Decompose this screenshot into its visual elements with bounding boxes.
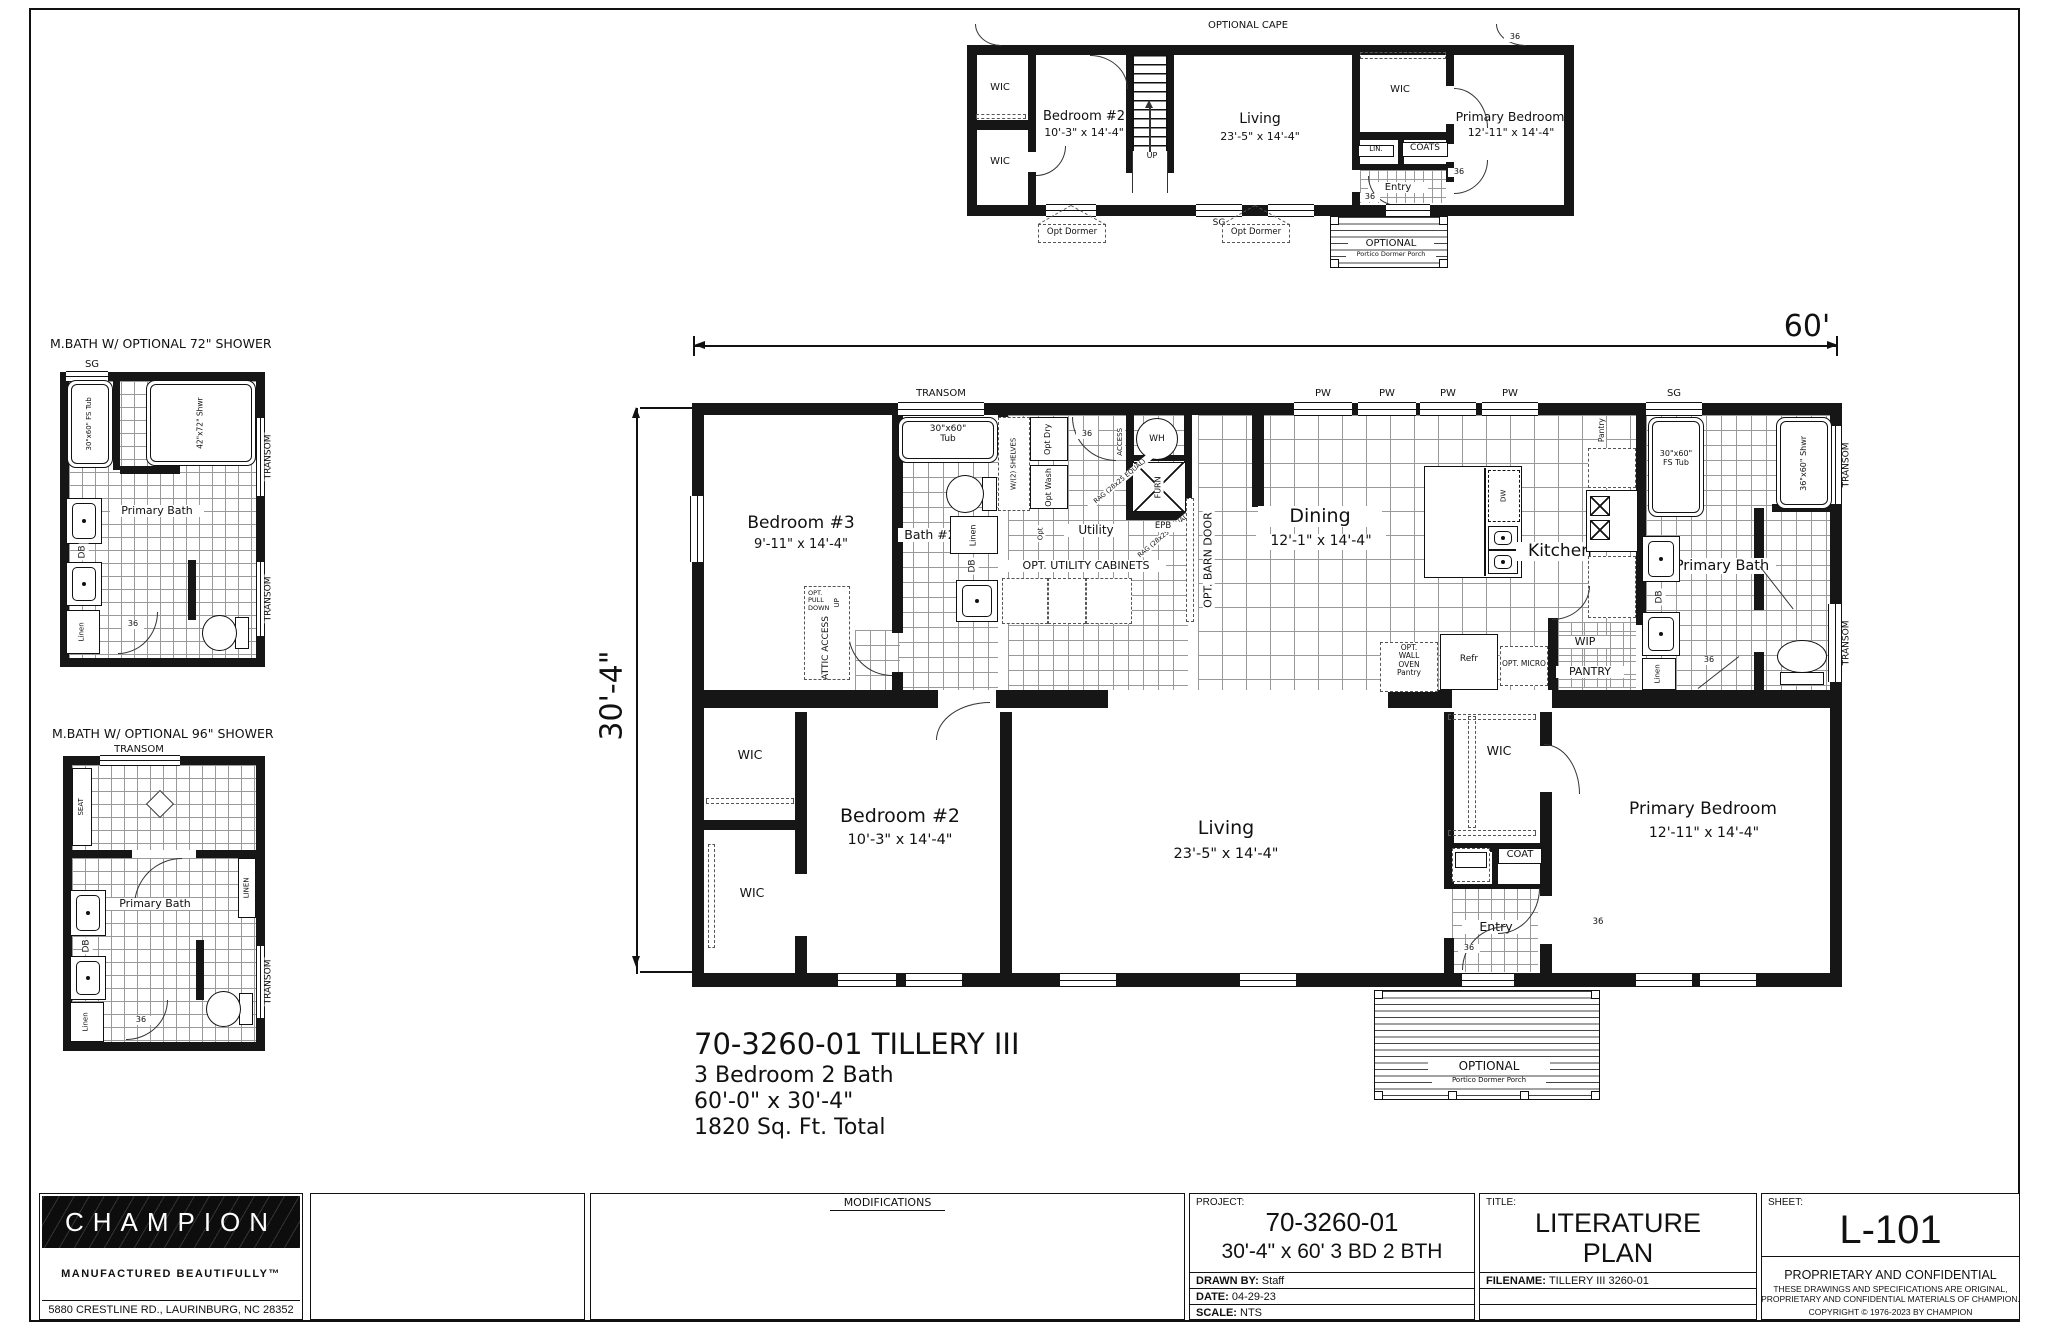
filename-row: FILENAME: TILLERY III 3260-01	[1479, 1272, 1757, 1288]
plan-title-line1: 70-3260-01 TILLERY III	[694, 1028, 1254, 1060]
pw-label: PW	[1482, 388, 1538, 399]
scale-row: SCALE: NTS	[1189, 1304, 1475, 1320]
drawn-by-label: DRAWN BY:	[1196, 1275, 1259, 1287]
cape-closet-lin: LIN.	[1358, 145, 1394, 157]
bath72-room-label: Primary Bath	[110, 505, 204, 517]
opt-label: Opt	[1034, 518, 1048, 550]
wall	[1540, 712, 1552, 746]
cape-room-living: Living	[1205, 112, 1315, 128]
porch-post	[1439, 216, 1448, 225]
transom-label: TRANSOM	[1840, 424, 1854, 506]
door-size-label: 36	[1076, 430, 1098, 439]
attic-access-label: ATTIC ACCESS	[804, 618, 850, 678]
date-value: 04-29-23	[1232, 1291, 1276, 1303]
sheet-number: L-101	[1761, 1208, 2020, 1253]
dim-60-label: 60'	[1772, 310, 1842, 344]
wall	[1028, 172, 1036, 205]
door-size-label: 36	[1360, 193, 1380, 202]
wip-label: WIP	[1560, 636, 1610, 648]
pantry-caps-label: PANTRY	[1556, 666, 1624, 678]
closet-shelf-dashed	[1448, 714, 1536, 720]
db-label: DB	[66, 544, 102, 560]
window	[1700, 973, 1756, 987]
bath96-transom-label: TRANSOM	[104, 744, 174, 755]
closet-shelf-dashed	[708, 844, 715, 948]
bath96-title: M.BATH W/ OPTIONAL 96" SHOWER	[52, 727, 332, 741]
room-utility: Utility	[1064, 524, 1128, 537]
wall	[1444, 938, 1454, 973]
stamp-box	[310, 1193, 585, 1320]
room-dining-dim: 12'-1" x 14'-4"	[1256, 534, 1386, 550]
linen-label: Linen	[1642, 658, 1676, 690]
island-divider	[1484, 468, 1486, 576]
tagline-band: MANUFACTURED BEAUTIFULLY™	[42, 1248, 300, 1300]
wall	[1352, 132, 1454, 140]
wall	[1028, 52, 1036, 152]
front-door-gap	[1462, 973, 1514, 987]
window	[1294, 402, 1352, 416]
window	[898, 402, 984, 416]
toilet	[1776, 640, 1828, 684]
island-sink	[1488, 526, 1518, 550]
pw-label: PW	[1358, 388, 1416, 399]
wall	[1754, 652, 1764, 690]
room-dining: Dining	[1258, 506, 1382, 527]
db-label: DB	[70, 938, 106, 954]
transom-label: TRANSOM	[1840, 602, 1854, 684]
room-primary-bedroom-dim: 12'-11" x 14'-4"	[1626, 826, 1782, 842]
epb-label: EPB	[1144, 522, 1182, 532]
wall	[892, 672, 903, 690]
opt-dry-label: Opt Dry	[1030, 417, 1068, 461]
sheet-divider	[1761, 1256, 2020, 1257]
db-label: DB	[1642, 584, 1680, 610]
cape-room-primary-bedroom-dim: 12'-11" x 14'-4"	[1452, 127, 1570, 139]
window	[1358, 402, 1416, 416]
window	[1060, 973, 1116, 987]
proprietary-line2: PROPRIETARY AND CONFIDENTIAL MATERIALS O…	[1761, 1295, 2020, 1305]
opt-cabinet	[1048, 578, 1086, 624]
brand-name: CHAMPION	[65, 1207, 277, 1238]
counter	[1588, 448, 1636, 488]
cape-porch-portico: Portico Dormer Porch	[1346, 251, 1436, 258]
vanity-sink	[956, 580, 998, 622]
opt-dormer-label: Opt Dormer	[1222, 228, 1290, 238]
wall	[1168, 45, 1174, 173]
stairs-up-label: UP	[1140, 152, 1164, 161]
porch-post	[1330, 216, 1339, 225]
tub-size-label: 30"x60" Tub	[898, 424, 998, 444]
dim-ext-tick	[640, 407, 692, 409]
dim-ext-tick	[693, 336, 695, 356]
barn-door-track	[1186, 498, 1194, 622]
pantry-label: Pantry	[1594, 412, 1610, 448]
porch-optional-label: OPTIONAL	[1428, 1060, 1550, 1073]
drawn-by-value: Staff	[1262, 1275, 1284, 1287]
plan-title-line2: 3 Bedroom 2 Bath	[694, 1064, 1254, 1089]
opt-micro-label: OPT. MICRO	[1500, 660, 1548, 668]
wall	[60, 658, 265, 667]
empty-row	[1479, 1304, 1757, 1320]
wall	[72, 850, 132, 858]
coat-closet-label: COAT	[1498, 848, 1542, 864]
closet-shelf-dashed	[1360, 52, 1446, 59]
closet-shelf-dashed	[976, 114, 1026, 119]
counter	[1588, 556, 1636, 618]
porch-post	[1591, 1091, 1600, 1100]
porch-post	[1374, 1091, 1383, 1100]
door-size-label: 36	[1458, 944, 1480, 953]
dim-304-label: 30'-4"	[588, 630, 636, 760]
cape-room-bedroom2: Bedroom #2	[1036, 110, 1132, 125]
room-bedroom2: Bedroom #2	[820, 806, 980, 827]
wall	[63, 1042, 265, 1051]
sheet-label: SHEET:	[1768, 1197, 1888, 1208]
toilet	[202, 614, 248, 652]
window	[1240, 973, 1296, 987]
wall	[1540, 944, 1552, 973]
wall	[120, 466, 180, 474]
vanity-sink	[1642, 612, 1680, 656]
island-sink	[1488, 550, 1518, 574]
stair-arrow-head	[1145, 100, 1153, 108]
sheet-title-line2: PLAN	[1479, 1238, 1757, 1268]
linen-label: Linen	[950, 516, 998, 554]
filename-value: TILLERY III 3260-01	[1549, 1275, 1649, 1287]
vanity-sink	[70, 890, 106, 936]
closet-shelf-dashed	[706, 798, 794, 804]
drawn-by-row: DRAWN BY: Staff	[1189, 1272, 1475, 1288]
cape-room-wic-3: WIC	[1370, 84, 1430, 95]
dw-label: DW	[1488, 470, 1520, 522]
entry-closet-shelf	[1455, 852, 1487, 868]
wh-label: WH	[1149, 434, 1165, 444]
wall	[188, 560, 196, 620]
transom-label: TRANSOM	[898, 388, 984, 399]
vanity-sink	[66, 498, 102, 544]
wall	[1000, 712, 1012, 973]
date-label: DATE:	[1196, 1291, 1229, 1303]
porch-post	[1448, 1091, 1457, 1100]
attic-up-label: UP	[830, 592, 846, 614]
door-size-label: 36	[1504, 33, 1526, 42]
window	[906, 973, 962, 987]
modifications-box	[590, 1193, 1185, 1320]
cape-room-bedroom2-dim: 10'-3" x 14'-4"	[1036, 127, 1132, 139]
shelves-label: W/(2) SHELVES	[998, 417, 1030, 511]
proprietary-line3: COPYRIGHT © 1976-2023 BY CHAMPION	[1761, 1308, 2020, 1318]
room-bedroom3-dim: 9'-11" x 14'-4"	[730, 538, 872, 553]
wall	[795, 712, 807, 874]
empty-row	[1479, 1288, 1757, 1304]
shower-size-label: 36"x60" Shwr	[1776, 417, 1832, 509]
cape-porch-optional: OPTIONAL	[1348, 238, 1434, 249]
transom-label: TRANSOM	[262, 558, 276, 640]
transom-label: TRANSOM	[262, 416, 276, 498]
porch-post	[1520, 1091, 1529, 1100]
sg-label: SG	[1646, 388, 1702, 399]
room-bedroom3: Bedroom #3	[726, 514, 876, 533]
project-desc: 30'-4" x 60' 3 BD 2 BTH	[1189, 1240, 1475, 1264]
wall	[1252, 415, 1264, 507]
pw-label: PW	[1420, 388, 1476, 399]
wall	[692, 690, 938, 708]
cape-plan-title: OPTIONAL CAPE	[1188, 20, 1308, 31]
window	[100, 755, 180, 766]
window	[1646, 402, 1702, 416]
bath72-sg-label: SG	[78, 359, 106, 370]
linen-label: Linen	[70, 1002, 104, 1042]
window	[690, 496, 704, 562]
seat-label: SEAT	[72, 768, 92, 846]
wall	[967, 45, 977, 216]
db-label: DB	[950, 554, 998, 578]
burner	[1590, 520, 1610, 540]
fs-tub-label: 30"x60" FS Tub	[1648, 450, 1704, 468]
wall	[1552, 690, 1832, 708]
access-label: ACCESS	[1114, 417, 1128, 467]
opt-utility-cabinets-label: OPT. UTILITY CABINETS	[1006, 560, 1166, 572]
filename-label: FILENAME:	[1486, 1275, 1546, 1287]
opt-wash-label: Opt Wash	[1030, 465, 1068, 509]
date-row: DATE: 04-29-23	[1189, 1288, 1475, 1304]
title-label: TITLE:	[1486, 1197, 1606, 1208]
water-heater: WH	[1136, 418, 1178, 460]
wall	[196, 850, 256, 858]
porch-portico-label: Portico Dormer Porch	[1432, 1077, 1546, 1085]
toilet	[206, 990, 252, 1028]
dim-304-line	[636, 408, 638, 974]
closet-shelf-dashed	[1468, 716, 1476, 828]
room-bedroom2-dim: 10'-3" x 14'-4"	[824, 832, 976, 848]
wall	[795, 936, 807, 973]
window	[1482, 402, 1538, 416]
vanity-sink	[66, 562, 102, 606]
closet-shelf-dashed	[1448, 830, 1536, 836]
cape-closet-coats: COATS	[1402, 142, 1448, 157]
plan-title-line4: 1820 Sq. Ft. Total	[694, 1116, 1254, 1141]
porch-post	[1591, 990, 1600, 999]
wall	[1548, 618, 1558, 690]
room-living-dim: 23'-5" x 14'-4"	[1158, 846, 1294, 862]
wall	[967, 120, 1028, 130]
wall	[1388, 690, 1452, 708]
address-band: 5880 CRESTLINE RD., LAURINBURG, NC 28352	[42, 1300, 300, 1318]
refr-label: Refr	[1444, 654, 1494, 664]
opt-cabinet	[1002, 578, 1048, 624]
scale-label: SCALE:	[1196, 1307, 1237, 1319]
porch-post	[1439, 259, 1448, 268]
vanity-sink	[1642, 536, 1680, 582]
project-number: 70-3260-01	[1189, 1208, 1475, 1237]
scale-value: NTS	[1240, 1307, 1262, 1319]
tub-size-label: 30"x60" FS Tub	[67, 380, 113, 468]
wall	[704, 820, 796, 830]
dim-arrow-up	[632, 407, 640, 418]
opt-barn-door-label: OPT. BARN DOOR	[1196, 490, 1222, 630]
proprietary-title: PROPRIETARY AND CONFIDENTIAL	[1761, 1268, 2020, 1282]
transom-label: TRANSOM	[262, 942, 276, 1022]
toilet	[946, 474, 996, 514]
bath72-title: M.BATH W/ OPTIONAL 72" SHOWER	[50, 337, 330, 351]
porch-post	[1330, 259, 1339, 268]
wall	[196, 940, 204, 1000]
drawing-sheet: OPTIONAL CAPE UP WIC WIC Bedroom #2 10'-…	[0, 0, 2048, 1325]
burner	[1590, 496, 1610, 516]
dim-arrow-left	[694, 341, 705, 349]
room-wic: WIC	[720, 886, 784, 900]
shower-size-label: 42"x72" Shwr	[146, 380, 256, 466]
cape-room-wic-2: WIC	[972, 156, 1028, 167]
cape-room-living-dim: 23'-5" x 14'-4"	[1202, 131, 1318, 143]
plan-title-line3: 60'-0" x 30'-4"	[694, 1090, 1254, 1115]
champion-logo: CHAMPION	[42, 1196, 300, 1248]
window	[838, 973, 896, 987]
cape-room-wic-1: WIC	[972, 82, 1028, 93]
opt-cabinet	[1086, 578, 1132, 624]
wall	[1352, 192, 1360, 216]
door-size-label: 36	[1698, 656, 1720, 665]
door-size-label: 36	[1448, 168, 1470, 177]
opt-wall-oven-label: OPT. WALL OVEN Pantry	[1380, 644, 1438, 678]
wall	[113, 380, 120, 470]
room-primary-bedroom: Primary Bedroom	[1608, 800, 1798, 819]
sheet-title-line1: LITERATURE	[1479, 1208, 1757, 1238]
room-wic: WIC	[718, 748, 782, 762]
wall	[996, 690, 1108, 708]
porch-post	[1374, 990, 1383, 999]
linen-label: Linen	[66, 610, 100, 654]
wall	[1446, 52, 1454, 86]
linen-caps-label: LINEN	[238, 858, 256, 918]
wall	[967, 45, 1574, 55]
dim-arrow-down	[632, 956, 640, 967]
pw-label: PW	[1294, 388, 1352, 399]
window	[1420, 402, 1476, 416]
door-size-label: 36	[1586, 918, 1610, 928]
vanity-sink	[70, 956, 106, 1000]
dim-ext-tick	[640, 971, 692, 973]
modifications-header: MODIFICATIONS	[590, 1197, 1185, 1209]
dim-60-line	[694, 345, 1838, 347]
opt-dormer-label: Opt Dormer	[1038, 228, 1106, 238]
brand-tagline: MANUFACTURED BEAUTIFULLY™	[61, 1268, 281, 1280]
room-living: Living	[1168, 818, 1284, 839]
window	[1636, 973, 1692, 987]
bath96-room-label: Primary Bath	[108, 898, 202, 910]
brand-address: 5880 CRESTLINE RD., LAURINBURG, NC 28352	[48, 1304, 293, 1316]
